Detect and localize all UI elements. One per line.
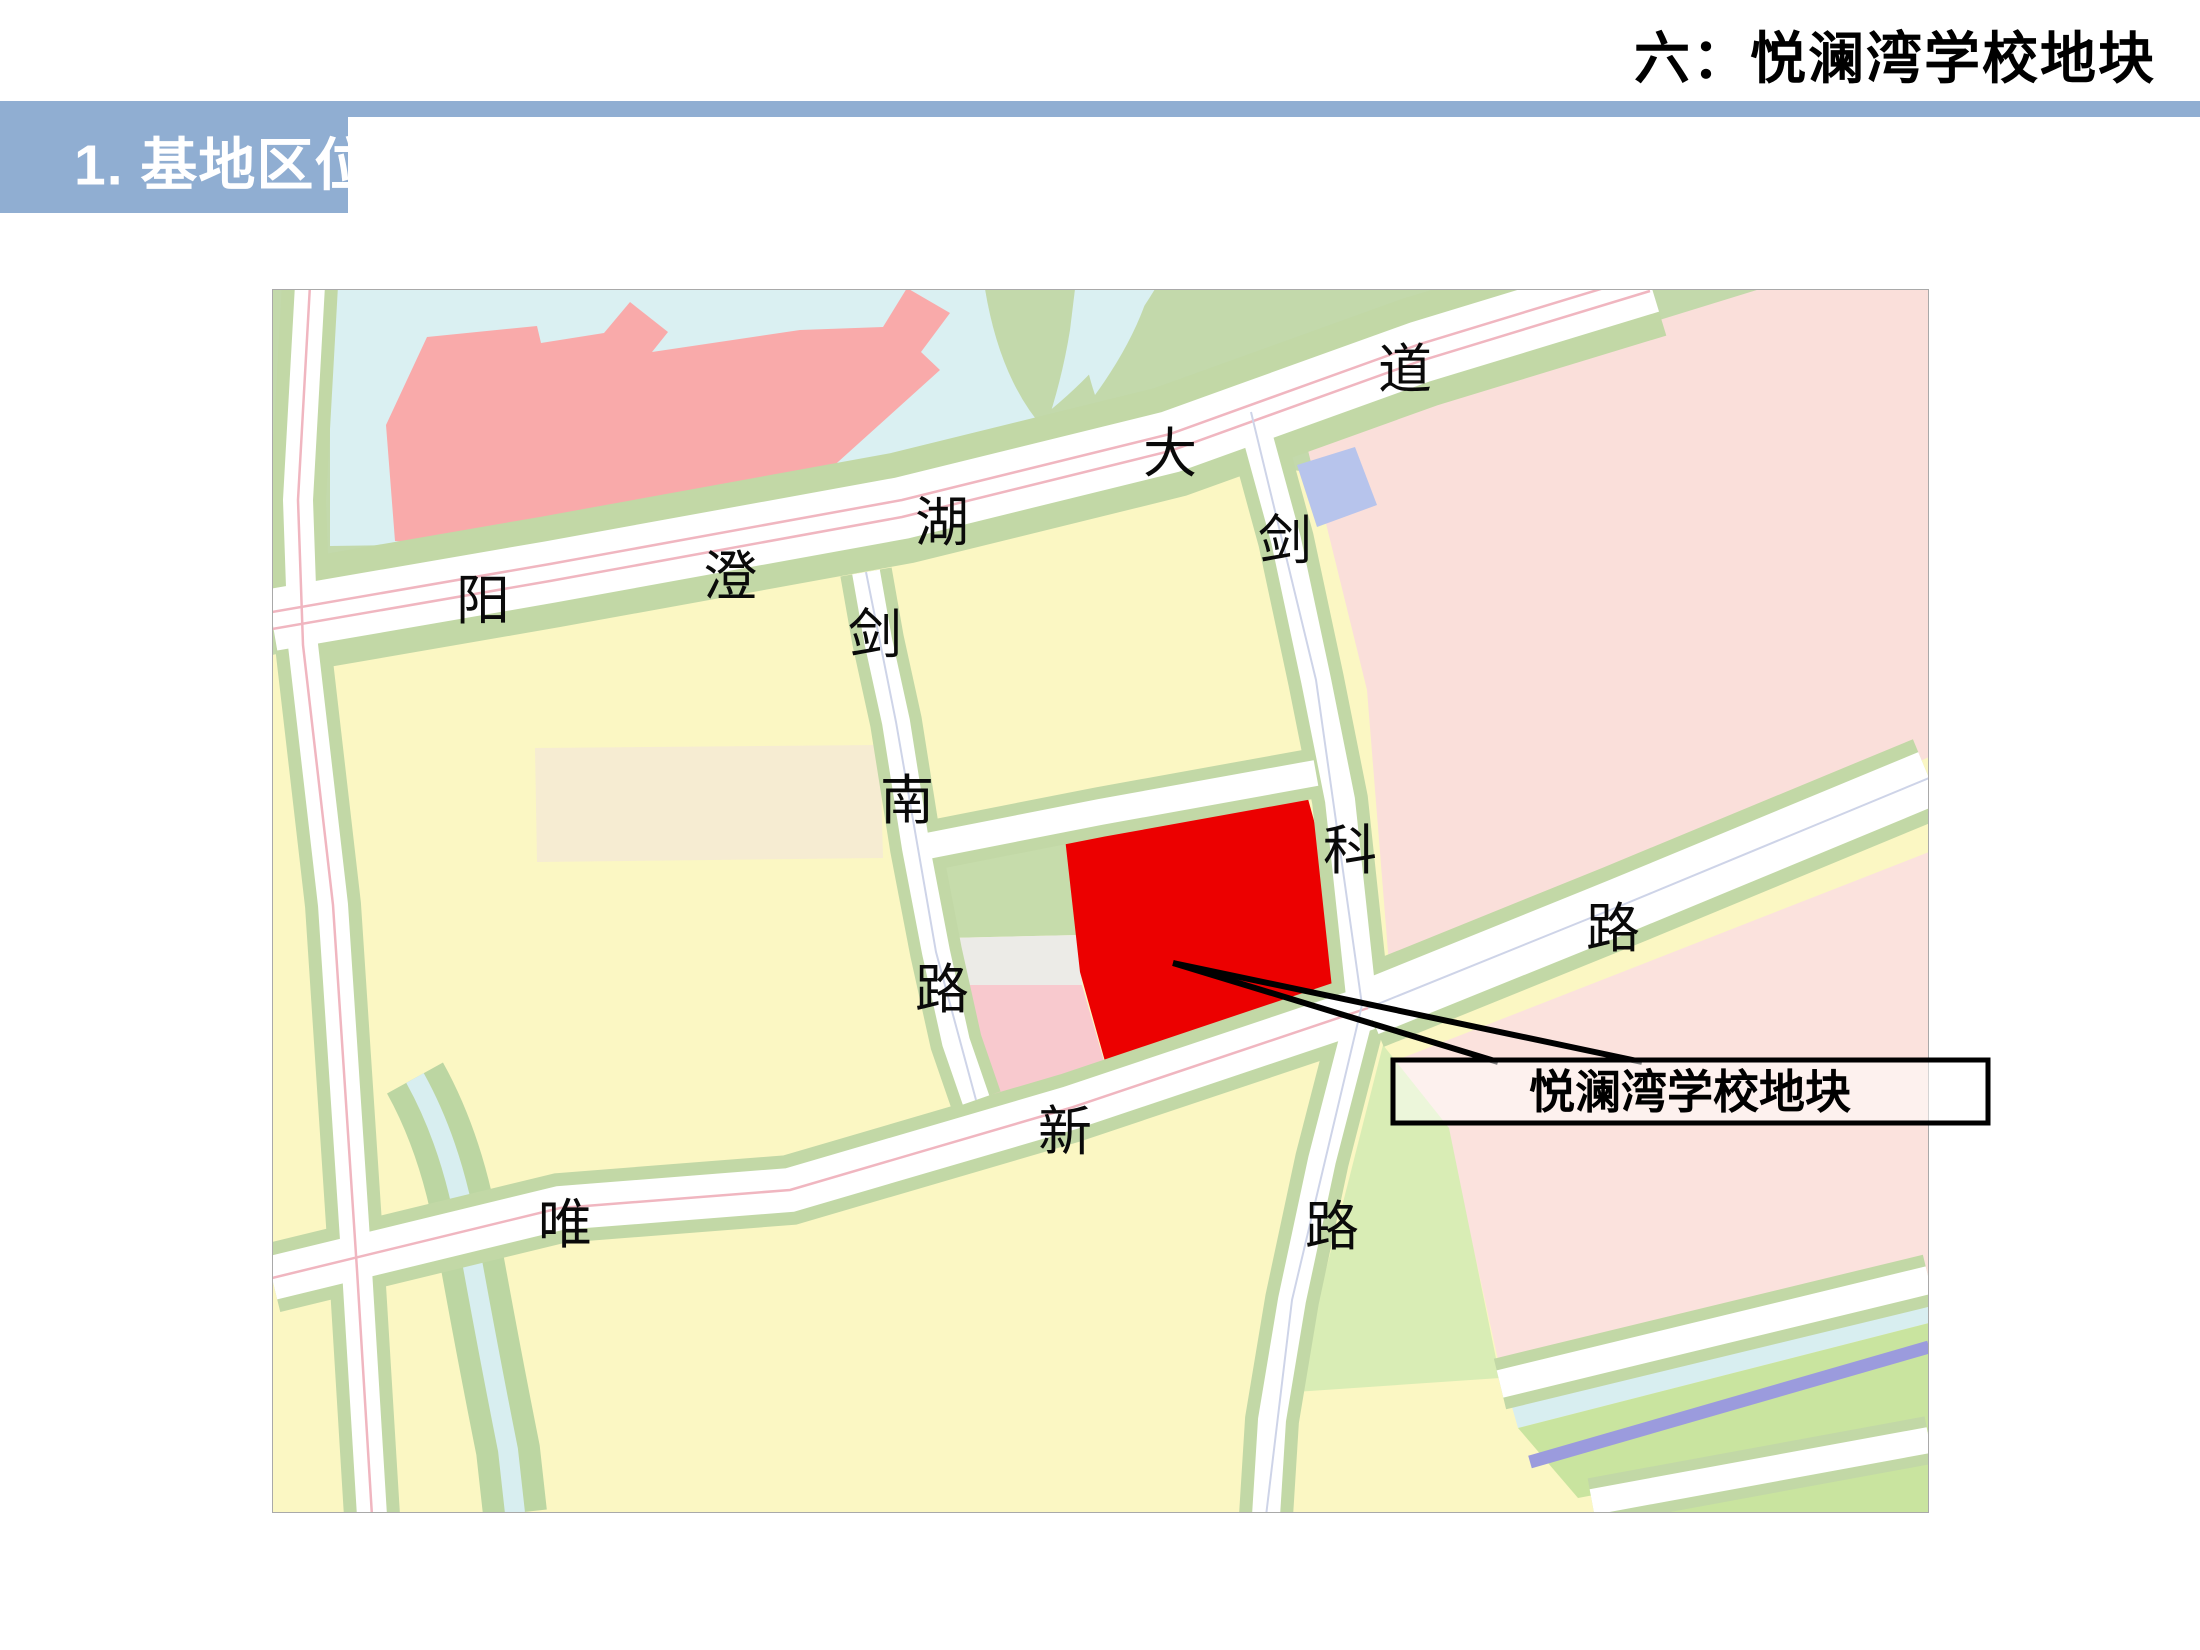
road-label: 路 <box>915 960 969 1020</box>
location-map: 阳 澄 湖 大 道 剑 南 路 剑 科 路 唯 新 路 悦澜湾学校地块 <box>0 0 2200 1650</box>
road-label: 剑 <box>848 605 902 665</box>
road-label: 澄 <box>703 547 757 607</box>
road-label: 南 <box>880 771 934 831</box>
road-label: 湖 <box>915 493 969 553</box>
callout-label: 悦澜湾学校地块 <box>1529 1066 1851 1118</box>
road-label: 唯 <box>538 1195 592 1255</box>
road-label: 路 <box>1305 1197 1359 1257</box>
road-label: 阳 <box>456 571 510 631</box>
road-label: 道 <box>1378 340 1432 400</box>
road-label: 大 <box>1143 424 1197 484</box>
parcel-cream <box>535 745 883 862</box>
road-label: 路 <box>1586 899 1640 959</box>
road-label: 新 <box>1038 1102 1092 1162</box>
map-canvas: 阳 澄 湖 大 道 剑 南 路 剑 科 路 唯 新 路 <box>272 274 1929 1516</box>
slide: { "page": { "title": "六：悦澜湾学校地块", "secti… <box>0 0 2200 1650</box>
road-label: 科 <box>1323 821 1377 881</box>
road-label: 剑 <box>1258 511 1312 571</box>
